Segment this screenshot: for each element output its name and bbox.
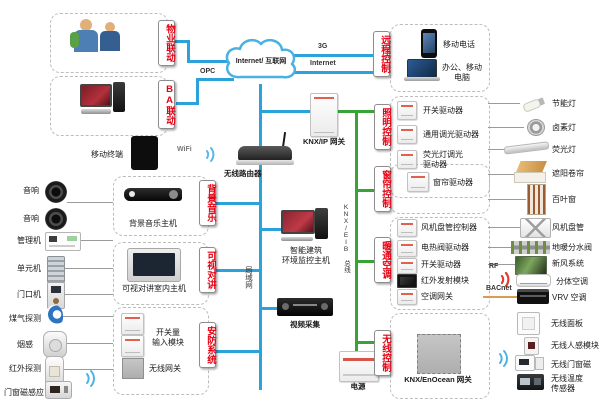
knx-ip-gateway-icon	[310, 93, 338, 137]
video-capture-icon	[277, 298, 333, 316]
remote-label: 远程控制	[373, 31, 390, 77]
unit-line	[63, 268, 113, 269]
awning-icon	[514, 161, 549, 182]
smoke-label: 烟感	[17, 340, 33, 350]
lan-to-security	[214, 350, 260, 353]
intercom-host-icon	[127, 248, 181, 282]
lan-to-bgm	[214, 202, 260, 205]
fancoil-icon	[520, 218, 551, 238]
speaker-line	[67, 202, 113, 203]
ba-link-line-v	[196, 78, 199, 105]
manager-device-icon	[45, 232, 81, 251]
blinds-icon	[527, 184, 546, 215]
wireless-doormag-label: 无线门窗磁	[551, 360, 591, 370]
fancoil-line	[488, 227, 520, 228]
bgm-host-label: 背景音乐主机	[123, 219, 183, 229]
security-wireless-gateway-icon	[122, 358, 144, 379]
security-wireless-gateway-label: 无线网关	[149, 364, 181, 374]
security-label: 安防系统	[199, 322, 216, 368]
door-line	[63, 294, 113, 295]
wifi-waves-icon	[203, 144, 218, 164]
intercom-label: 可视对讲	[199, 247, 216, 293]
power-supply-label: 电源	[343, 382, 373, 391]
manifold-icon	[511, 241, 550, 254]
power-supply-icon	[339, 351, 379, 382]
fluorescent-driver-icon	[397, 150, 417, 169]
monitor-host-icon	[281, 208, 331, 246]
lan-backbone	[259, 84, 262, 390]
manifold-line	[488, 247, 512, 248]
door-magnet-waves-icon	[82, 366, 98, 390]
lighting-label: 照明控制	[374, 104, 391, 150]
wireless-pir-icon	[524, 337, 539, 355]
wireless-panel-label: 无线面板	[551, 319, 583, 329]
office-computer-label: 办公、移动 电脑	[438, 63, 486, 82]
wireless-router-label: 无线路由器	[224, 169, 262, 178]
hvac-label: 暖通空调	[374, 237, 391, 283]
fluorescent-lamp-label: 荧光灯	[552, 145, 576, 155]
line-internet	[294, 71, 376, 74]
gas-line	[62, 316, 113, 317]
split-ac-label: 分体空调	[556, 277, 588, 287]
line-3g	[294, 54, 376, 57]
enocean-gateway-label: KNX/EnOcean 网关	[394, 375, 482, 384]
monitor-host-label: 智能建筑 环境监控主机	[270, 246, 342, 265]
mobile-phone-label: 移动电话	[443, 40, 475, 50]
property-label: 物业联动	[158, 20, 175, 66]
ba-label: BA联动	[158, 80, 175, 129]
bgm-host-icon	[124, 188, 182, 201]
intercom-host-label: 可视对讲室内主机	[116, 284, 192, 294]
halogen-lamp-icon	[527, 119, 545, 136]
hvac-switch-driver-icon	[397, 258, 417, 274]
knx-ip-gateway-label: KNX/IP 网关	[296, 137, 352, 146]
curtain-driver-icon	[407, 172, 429, 192]
speaker-icon-1	[45, 181, 67, 203]
switch-driver-icon	[397, 101, 417, 120]
awning-line	[488, 174, 514, 175]
fluorescent-lamp-icon	[504, 141, 550, 154]
ac-gateway-label: 空调网关	[421, 292, 453, 302]
bacnet-line	[483, 296, 517, 298]
knx-bus-text: KNX/EIB 总线	[342, 204, 349, 273]
gas-detector-icon	[46, 305, 63, 326]
cfl-lamp-icon	[523, 98, 545, 112]
unit-label: 单元机	[17, 264, 41, 274]
gas-label: 煤气探测	[9, 314, 41, 324]
blinds-line	[488, 199, 526, 200]
fluorescent-driver-label: 荧光灯调光 驱动器	[423, 150, 463, 169]
ir-emitter-label: 红外发射模块	[421, 276, 469, 286]
knx-bus-line	[355, 110, 358, 354]
wireless-temp-icon	[517, 374, 544, 390]
speaker-label-2: 音响	[23, 214, 39, 224]
enocean-gateway-icon	[417, 334, 461, 374]
tablet-icon	[131, 136, 158, 170]
wireless-router-icon	[236, 132, 296, 168]
speaker-icon-2	[45, 208, 67, 230]
knx-to-hvac	[355, 260, 374, 263]
wireless-waves-icon	[495, 346, 511, 370]
fancoil-controller-icon	[397, 219, 417, 237]
input-module-icon-2	[121, 335, 144, 357]
vrv-ac-icon	[517, 289, 549, 304]
g3-text: 3G	[318, 43, 327, 51]
input-module-icon-1	[121, 313, 144, 335]
wifi-text: WiFi	[177, 146, 192, 154]
mobile-terminal-label: 移动终端	[91, 150, 123, 160]
curtain-label: 窗帘控制	[374, 166, 391, 212]
laptop-icon	[404, 59, 440, 81]
video-capture-label: 视频采集	[285, 320, 325, 329]
pir-label: 红外探测	[9, 364, 41, 374]
ac-gateway-icon	[397, 289, 417, 305]
smoke-line	[64, 343, 113, 344]
people-icon	[74, 17, 124, 57]
lan-to-knxip	[259, 110, 310, 113]
cfl-lamp-label: 节能灯	[552, 99, 576, 109]
heat-valve-driver-icon	[397, 240, 417, 257]
wireless-panel-icon	[517, 312, 540, 335]
door-label: 门口机	[17, 290, 41, 300]
internet-text: Internet	[310, 60, 336, 68]
wireless-pir-label: 无线人感模块	[551, 341, 599, 351]
knx-to-wireless	[355, 341, 374, 344]
hvac-switch-driver-label: 开关驱动器	[421, 260, 461, 270]
mobile-phone-icon	[421, 29, 437, 58]
cloud-text: Internet/ 互联网	[228, 58, 294, 66]
door-magnet-icon	[45, 381, 72, 399]
ir-emitter-icon	[397, 274, 417, 288]
knx-to-curtain	[355, 189, 374, 192]
split-ac-icon	[516, 274, 551, 287]
input-module-label: 开关量 输入模块	[146, 328, 190, 347]
blinds-label: 百叶窗	[552, 195, 576, 205]
halogen-lamp-label: 卤素灯	[552, 123, 576, 133]
speaker-label-1: 音响	[23, 186, 39, 196]
freshair-icon	[515, 256, 547, 275]
ba-computer-icon	[80, 82, 128, 124]
switch-driver-label: 开关驱动器	[423, 106, 463, 116]
wireless-label: 无线控制	[374, 330, 391, 376]
cfl-line	[488, 103, 520, 104]
manager-label: 管理机	[17, 236, 41, 246]
unit-device-icon	[47, 256, 65, 283]
wireless-doormag-icon	[515, 355, 544, 370]
vrv-ac-label: VRV 空调	[552, 293, 587, 303]
curtain-box	[390, 164, 490, 214]
freshair-label: 新风系统	[552, 259, 584, 269]
door-magnet-label: 门窗磁感应	[4, 388, 44, 398]
rf-text: RF	[489, 263, 498, 271]
lan-text: 局域网	[245, 266, 253, 289]
heat-valve-driver-label: 电热阀驱动器	[421, 243, 469, 253]
opc-text: OPC	[200, 68, 215, 76]
fancoil-label: 风机盘管	[552, 223, 584, 233]
manifold-label: 地暖分水阀	[552, 243, 592, 253]
fancoil-controller-label: 风机盘管控制器	[421, 223, 477, 233]
bacnet-text: BACnet	[486, 285, 512, 293]
diagram-canvas: 物业联动 BA联动 远程控制 照明控制 窗帘控制 暖通空调 无线控制 背景音乐 …	[0, 0, 600, 400]
wireless-temp-label: 无线温度 传感器	[551, 374, 583, 393]
awning-label: 遮阳卷帘	[552, 169, 584, 179]
manager-line	[79, 240, 113, 241]
bgm-label: 背景音乐	[199, 180, 216, 226]
halogen-line	[488, 127, 524, 128]
smoke-detector-icon	[43, 331, 67, 358]
curtain-driver-label: 窗帘驱动器	[433, 178, 473, 188]
dimmer-driver-label: 通用调光驱动器	[423, 130, 479, 140]
dimmer-driver-icon	[397, 125, 417, 144]
